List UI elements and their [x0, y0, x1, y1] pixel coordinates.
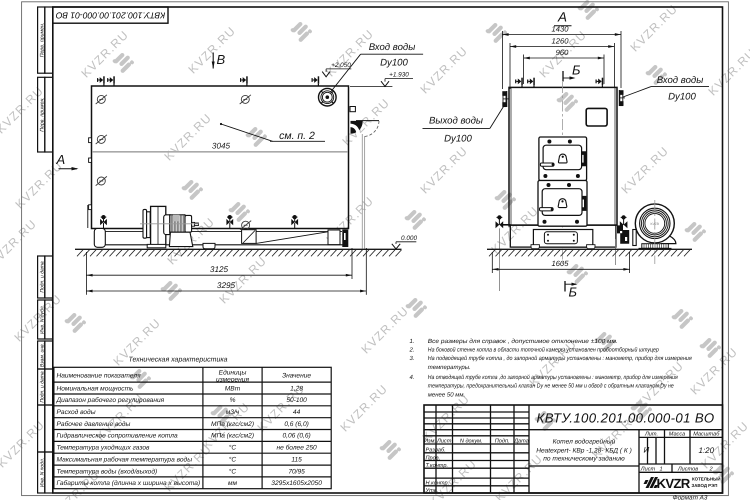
svg-text:50-100: 50-100 [286, 397, 307, 404]
svg-text:Лист: Лист [640, 467, 656, 473]
svg-text:Температура уходящих газов: Температура уходящих газов [57, 445, 150, 452]
svg-text:А: А [56, 152, 66, 167]
svg-text:Б: Б [569, 285, 578, 300]
svg-text:4.: 4. [410, 374, 415, 381]
svg-text:Температура воды (вход/выход): Температура воды (вход/выход) [57, 468, 158, 475]
svg-text:°С: °С [229, 456, 237, 463]
svg-text:МВт: МВт [225, 385, 241, 392]
svg-text:N докум.: N докум. [460, 437, 483, 444]
svg-text:70/95: 70/95 [288, 468, 305, 475]
svg-text:ЗАВОД РЭП: ЗАВОД РЭП [692, 483, 718, 488]
svg-text:3295х1605х2050: 3295х1605х2050 [271, 480, 322, 487]
svg-text:°С: °С [229, 445, 237, 452]
svg-text:1260: 1260 [552, 37, 570, 46]
svg-text:+2.050: +2.050 [331, 62, 351, 69]
svg-text:Максимальная рабочая температу: Максимальная рабочая температура воды [57, 456, 193, 463]
svg-text:температуры.: температуры. [428, 365, 471, 371]
svg-text:КОТЕЛЬНЫЙ: КОТЕЛЬНЫЙ [692, 477, 721, 482]
svg-text:1605: 1605 [552, 259, 570, 268]
svg-text:Вход воды: Вход воды [369, 42, 416, 53]
svg-text:Heatexpert- КВр -1,28- КБД ( К: Heatexpert- КВр -1,28- КБД ( К ) [536, 448, 632, 455]
svg-text:измерения: измерения [216, 376, 249, 383]
svg-text:МПа (кгс/см2): МПа (кгс/см2) [211, 421, 254, 428]
svg-text:°С: °С [229, 468, 237, 475]
svg-text:Dy100: Dy100 [380, 57, 408, 68]
svg-text:0,6 (6,0): 0,6 (6,0) [284, 421, 309, 428]
svg-text:Инв. N дубл.: Инв. N дубл. [40, 305, 46, 334]
svg-text:На боковой стенке котла в обла: На боковой стенке котла в области топочн… [428, 347, 660, 354]
svg-text:3.: 3. [410, 355, 415, 362]
svg-text:Подп.: Подп. [495, 437, 510, 444]
svg-text:не более 250: не более 250 [276, 445, 317, 452]
svg-text:Листов: Листов [677, 467, 698, 473]
svg-text:1.: 1. [410, 338, 415, 345]
svg-text:Габариты котла (длинна х ширин: Габариты котла (длинна х ширина х высота… [57, 480, 201, 487]
svg-text:Номинальная мощность: Номинальная мощность [57, 385, 135, 392]
svg-text:3045: 3045 [212, 142, 231, 151]
svg-text:1430: 1430 [552, 25, 570, 34]
svg-text:Подп. и дата: Подп. и дата [40, 371, 46, 403]
svg-text:0,06 (0,6): 0,06 (0,6) [282, 433, 310, 440]
svg-text:На отводящей трубе котла ,до з: На отводящей трубе котла ,до запорной ар… [428, 374, 679, 381]
svg-text:Гидравлическое сопротивление к: Гидравлическое сопротивление котла [57, 433, 178, 440]
svg-text:Инв. N подл.: Инв. N подл. [40, 458, 46, 487]
svg-text:Формат А3: Формат А3 [673, 494, 708, 500]
svg-text:Котел водогрейный: Котел водогрейный [553, 439, 616, 446]
svg-text:Выход воды: Выход воды [429, 116, 483, 127]
svg-text:Утв.: Утв. [425, 488, 439, 494]
svg-text:Н.контр.: Н.контр. [426, 481, 450, 487]
svg-text:Пров.: Пров. [426, 455, 441, 461]
svg-text:3295: 3295 [217, 281, 236, 290]
svg-text:Дата: Дата [513, 438, 529, 444]
svg-text:Лист: Лист [436, 438, 452, 444]
svg-text:0.000: 0.000 [401, 235, 417, 242]
svg-text:температуры, предохранительный: температуры, предохранительный клапан Dу… [428, 383, 675, 390]
svg-text:Расход воды: Расход воды [57, 409, 96, 416]
svg-text:Единицы: Единицы [219, 369, 247, 376]
svg-text:%: % [230, 397, 236, 404]
svg-text:Перв. примен.: Перв. примен. [40, 23, 46, 57]
svg-text:1,28: 1,28 [290, 385, 303, 392]
svg-text:МПа (кгс/см2): МПа (кгс/см2) [211, 433, 254, 440]
svg-text:44: 44 [293, 409, 301, 416]
svg-text:Наименование показателя: Наименование показателя [57, 373, 142, 380]
svg-text:менее 50 мм.: менее 50 мм. [428, 391, 465, 398]
svg-text:Лит.: Лит. [644, 431, 658, 437]
svg-text:Подп. и дата: Подп. и дата [40, 261, 46, 293]
svg-text:Разраб.: Разраб. [426, 446, 446, 453]
svg-text:KVZR: KVZR [657, 476, 691, 491]
svg-text:см. п. 2: см. п. 2 [279, 130, 315, 142]
svg-text:Масштаб: Масштаб [693, 430, 720, 437]
svg-text:1: 1 [659, 467, 662, 473]
svg-text:В: В [217, 52, 226, 67]
svg-text:+1.930: +1.930 [389, 72, 409, 79]
svg-text:115: 115 [291, 456, 302, 463]
svg-text:Б: Б [572, 63, 581, 78]
svg-text:И: И [644, 446, 650, 455]
svg-text:КВТУ.100.201.00.000-01 ВО: КВТУ.100.201.00.000-01 ВО [537, 411, 715, 426]
svg-text:3125: 3125 [210, 265, 229, 274]
svg-text:960: 960 [556, 48, 569, 57]
svg-text:Взам. инв.: Взам. инв. [40, 343, 46, 367]
svg-text:Рабочее давление воды: Рабочее давление воды [57, 421, 131, 428]
svg-text:Техническая характеристика: Техническая характеристика [128, 357, 227, 364]
svg-text:На подводящей трубе котла ,: На подводящей трубе котла , до запорной … [428, 355, 693, 362]
svg-text:Dy100: Dy100 [668, 92, 696, 103]
svg-text:2.: 2. [409, 347, 415, 354]
svg-text:м3/ч: м3/ч [226, 409, 240, 416]
svg-text:Т.контр.: Т.контр. [426, 463, 449, 469]
svg-text:Масса: Масса [669, 431, 686, 437]
svg-text:Dy100: Dy100 [444, 134, 472, 145]
svg-text:Вход воды: Вход воды [657, 75, 704, 86]
svg-text:Изм.: Изм. [424, 438, 436, 444]
svg-text:КВТУ.100.201.00.000-01 ВО: КВТУ.100.201.00.000-01 ВО [55, 10, 165, 20]
svg-text:Значение: Значение [282, 373, 311, 380]
svg-text:А: А [557, 10, 567, 25]
svg-text:1:20: 1:20 [699, 446, 715, 455]
svg-text:Все размеры для справок , допу: Все размеры для справок , допустимое отк… [428, 338, 618, 345]
svg-text:Перв. примен.: Перв. примен. [40, 97, 46, 131]
svg-text:по техническому заданию: по техническому заданию [543, 456, 625, 463]
svg-text:Диапазон рабочего регулировани: Диапазон рабочего регулирования [56, 397, 165, 404]
svg-text:мм: мм [228, 480, 238, 487]
